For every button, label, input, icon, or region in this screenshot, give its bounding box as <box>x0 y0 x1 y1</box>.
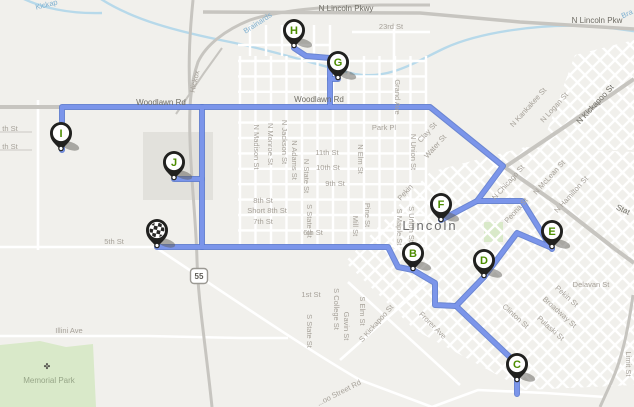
road-label: th St <box>2 142 18 151</box>
marker-letter: F <box>438 199 445 211</box>
highway-shield-55: 55 <box>191 269 208 284</box>
marker-tip-ring <box>336 75 340 79</box>
memorial-park-label: Memorial Park <box>23 376 76 385</box>
marker-tip-ring <box>550 244 554 248</box>
road-label: N State St <box>302 159 311 194</box>
road-label: 5th St <box>104 237 125 246</box>
road-label: N Madison St <box>252 124 261 170</box>
road-label: S College St <box>332 288 341 331</box>
marker-tip-ring <box>482 273 486 277</box>
road-label: Woodlawn Rd <box>294 95 344 104</box>
road-label: N Lincoln Pkwy <box>319 4 374 13</box>
marker-letter: J <box>171 157 177 169</box>
road-label: th St <box>2 124 18 133</box>
road-label: 7th St <box>253 217 274 226</box>
map-canvas[interactable]: KickapBrainardsBraN Lincoln PkwyN Lincol… <box>0 0 634 407</box>
road-label: Grand Ave <box>393 79 402 114</box>
marker-letter: E <box>548 226 555 238</box>
road-label: N Elm St <box>356 144 365 175</box>
marker-letter: D <box>480 255 488 267</box>
svg-text:55: 55 <box>195 272 204 281</box>
marker-tip-ring <box>155 243 159 247</box>
marker-tip-ring <box>411 266 415 270</box>
marker-tip-ring <box>515 377 519 381</box>
marker-tip-ring <box>59 146 63 150</box>
marker-letter: H <box>290 25 298 37</box>
marker-letter: C <box>513 359 521 371</box>
road-label: Pine St <box>363 203 372 228</box>
road-label: Gavin St <box>342 312 351 342</box>
marker-tip-ring <box>172 175 176 179</box>
marker-letter: B <box>409 248 417 260</box>
tree-icon: ✤ <box>44 362 51 371</box>
road-label: S Elm St <box>358 296 367 326</box>
marker-letter: I <box>59 128 62 140</box>
road-label: Woodlawn Rd <box>136 98 186 107</box>
marker-tip-ring <box>439 217 443 221</box>
road-label: Short 8th St <box>247 206 288 215</box>
road-label: S State St <box>305 314 314 349</box>
road-label: 11th St <box>315 148 339 157</box>
map-svg[interactable]: KickapBrainardsBraN Lincoln PkwyN Lincol… <box>0 0 634 407</box>
road-label: 23rd St <box>379 22 404 31</box>
road-label: N Monroe St <box>266 123 275 166</box>
road-label: N Jackson St <box>280 120 289 165</box>
marker-tip-ring <box>292 43 296 47</box>
road-label: Illini Ave <box>55 326 82 335</box>
road-label: 1st St <box>301 290 321 299</box>
road-label: 8th St <box>253 196 274 205</box>
road-label: 9th St <box>325 179 346 188</box>
road-label: Mill St <box>351 216 360 237</box>
road-label: N Lincoln Pkw <box>572 16 623 25</box>
road-label: S State St <box>305 204 314 239</box>
road-label: Limit St <box>624 351 633 377</box>
road-label: N Adams St <box>290 140 299 181</box>
marker-letter: G <box>334 57 343 69</box>
road-label: Delavan St <box>573 280 611 289</box>
memorial-park-area <box>0 341 96 407</box>
road-label: Park Pl <box>372 123 397 132</box>
road-label: 10th St <box>316 163 341 172</box>
